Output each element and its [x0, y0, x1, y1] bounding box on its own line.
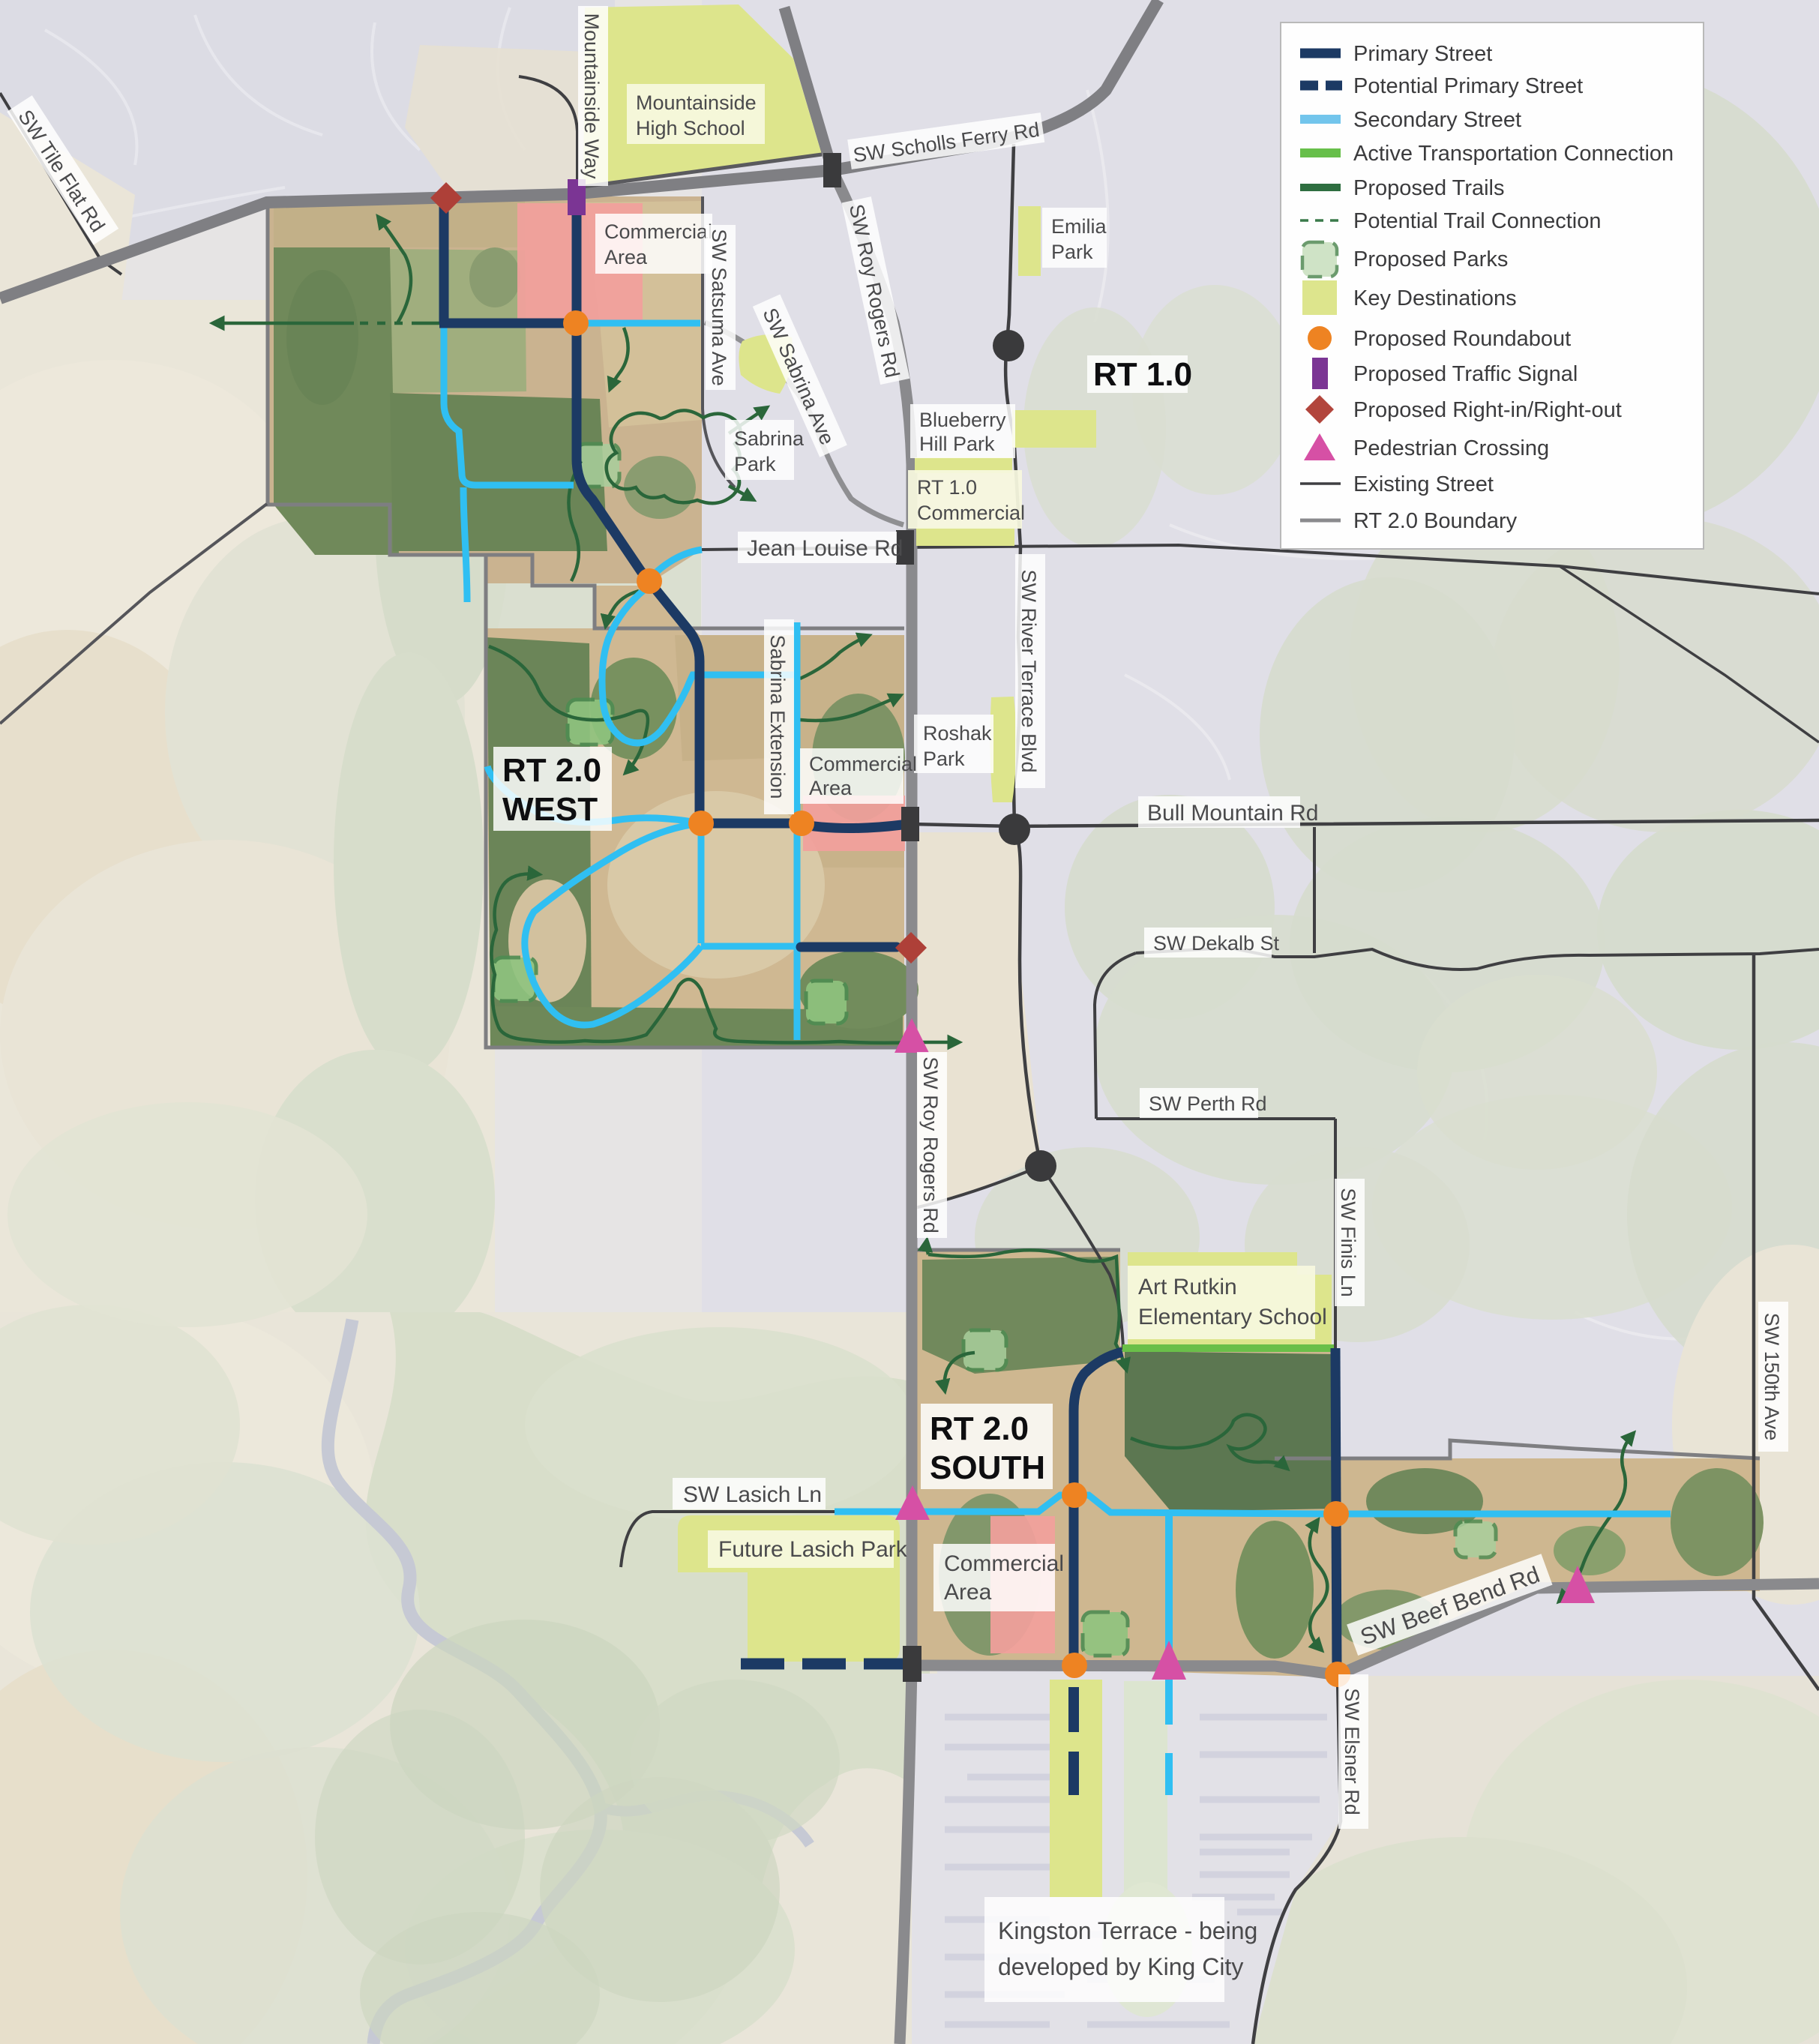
svg-text:Art Rutkin: Art Rutkin [1138, 1275, 1237, 1299]
svg-text:SW 150th Ave: SW 150th Ave [1761, 1313, 1783, 1441]
svg-text:Active Transportation Connecti: Active Transportation Connection [1353, 142, 1674, 166]
svg-text:Roshak: Roshak [923, 722, 992, 745]
svg-text:Area: Area [809, 777, 853, 799]
svg-text:Hill Park: Hill Park [919, 433, 995, 455]
svg-text:Pedestrian Crossing: Pedestrian Crossing [1353, 436, 1549, 460]
svg-text:SW River Terrace Blvd: SW River Terrace Blvd [1017, 569, 1040, 772]
svg-text:High School: High School [636, 117, 745, 139]
svg-text:Mountainside: Mountainside [636, 91, 757, 114]
svg-text:Bull Mountain Rd: Bull Mountain Rd [1147, 801, 1318, 826]
svg-text:Commercial: Commercial [604, 220, 712, 243]
svg-text:Proposed Right-in/Right-out: Proposed Right-in/Right-out [1353, 398, 1622, 422]
svg-text:Mountainside Way: Mountainside Way [580, 13, 603, 179]
svg-text:Park: Park [1051, 241, 1093, 263]
svg-text:SW Dekalb St: SW Dekalb St [1153, 932, 1280, 955]
svg-text:RT 1.0: RT 1.0 [1093, 356, 1192, 393]
svg-text:RT 1.0: RT 1.0 [917, 476, 977, 499]
svg-text:SW Elsner Rd: SW Elsner Rd [1341, 1688, 1363, 1815]
svg-text:RT 2.0: RT 2.0 [930, 1410, 1029, 1447]
svg-text:Elementary School: Elementary School [1138, 1305, 1327, 1329]
svg-text:SW Satsuma Ave: SW Satsuma Ave [708, 229, 730, 386]
svg-text:Proposed Traffic Signal: Proposed Traffic Signal [1353, 362, 1578, 386]
svg-text:SW Roy Rogers Rd: SW Roy Rogers Rd [919, 1056, 942, 1233]
svg-text:Key Destinations: Key Destinations [1353, 286, 1517, 310]
svg-text:Area: Area [604, 246, 648, 268]
svg-text:SW Finis Ln: SW Finis Ln [1337, 1188, 1359, 1297]
svg-text:Potential Trail Connection: Potential Trail Connection [1353, 209, 1601, 233]
svg-text:RT 2.0 Boundary: RT 2.0 Boundary [1353, 509, 1518, 533]
svg-text:Potential Primary Street: Potential Primary Street [1353, 74, 1583, 98]
svg-text:SOUTH: SOUTH [930, 1449, 1045, 1486]
svg-text:Commercial: Commercial [809, 753, 917, 775]
svg-text:Proposed Trails: Proposed Trails [1353, 176, 1505, 200]
svg-text:Kingston Terrace - being: Kingston Terrace - being [998, 1917, 1257, 1944]
svg-text:Emilia: Emilia [1051, 215, 1107, 238]
svg-text:Park: Park [923, 748, 965, 770]
svg-text:SW Lasich Ln: SW Lasich Ln [683, 1482, 822, 1507]
svg-text:Existing Street: Existing Street [1353, 472, 1494, 496]
svg-text:Blueberry: Blueberry [919, 409, 1006, 431]
svg-text:developed by King City: developed by King City [998, 1953, 1243, 1980]
svg-text:Future Lasich Park: Future Lasich Park [718, 1537, 908, 1562]
svg-text:Secondary Street: Secondary Street [1353, 108, 1521, 132]
svg-text:Park: Park [734, 453, 776, 475]
svg-text:Sabrina Extension: Sabrina Extension [766, 634, 789, 799]
svg-text:Jean Louise Rd: Jean Louise Rd [747, 536, 903, 561]
svg-text:Commercial: Commercial [917, 502, 1025, 524]
svg-text:Commercial: Commercial [944, 1551, 1064, 1576]
svg-text:Area: Area [944, 1580, 992, 1605]
svg-text:SW Perth Rd: SW Perth Rd [1149, 1092, 1267, 1115]
svg-text:Proposed Roundabout: Proposed Roundabout [1353, 327, 1571, 351]
svg-text:RT 2.0: RT 2.0 [502, 752, 601, 789]
svg-text:Sabrina: Sabrina [734, 427, 805, 450]
svg-text:WEST: WEST [502, 791, 598, 828]
svg-text:Proposed Parks: Proposed Parks [1353, 247, 1508, 271]
svg-text:Primary Street: Primary Street [1353, 42, 1492, 66]
